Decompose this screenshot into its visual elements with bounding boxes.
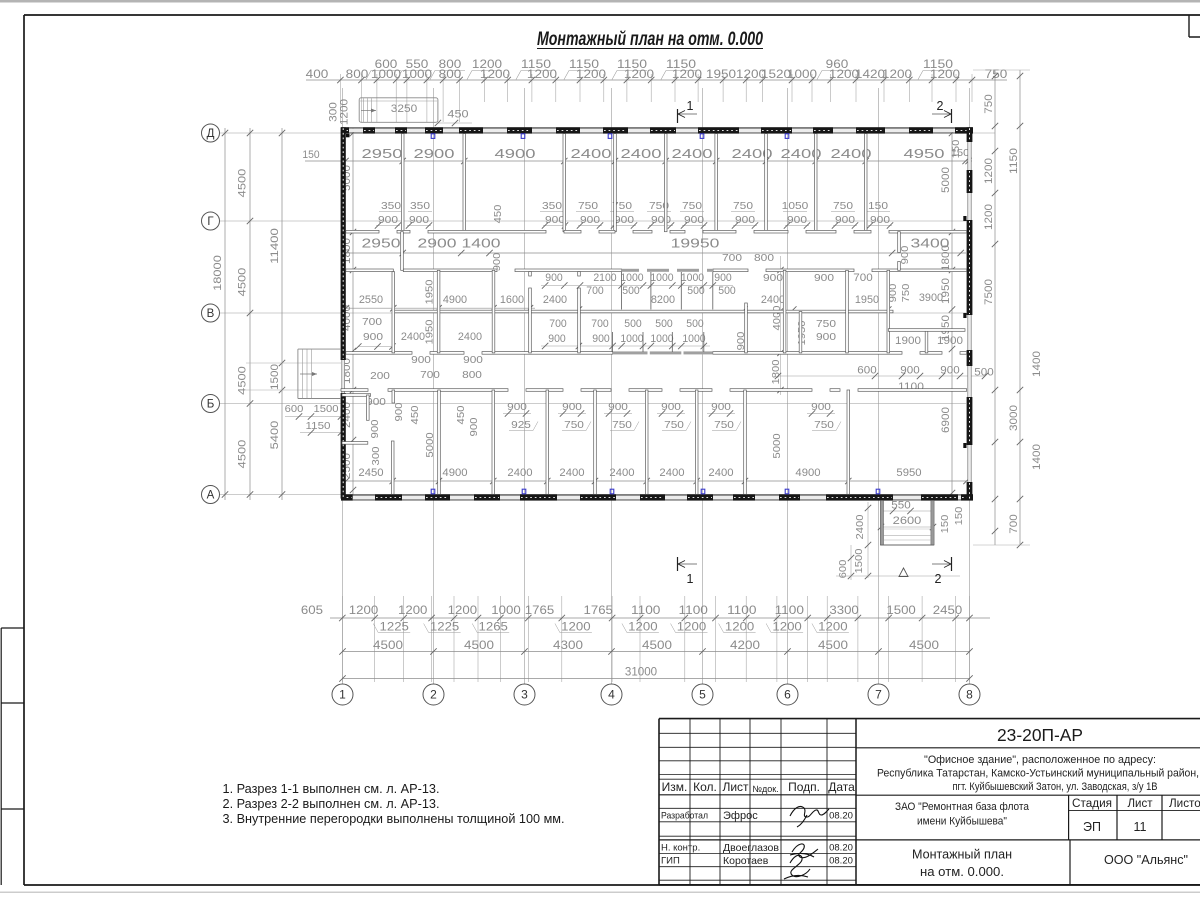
svg-text:2: 2 bbox=[430, 688, 437, 702]
svg-text:2400: 2400 bbox=[559, 467, 584, 479]
svg-text:1900: 1900 bbox=[895, 335, 921, 347]
svg-text:Изм.: Изм. bbox=[662, 780, 688, 794]
svg-text:Листов: Листов bbox=[1169, 798, 1200, 810]
svg-text:Г: Г bbox=[207, 216, 214, 228]
svg-text:600: 600 bbox=[857, 365, 877, 377]
svg-text:4500: 4500 bbox=[642, 640, 672, 652]
svg-text:450: 450 bbox=[455, 405, 467, 424]
svg-text:1400: 1400 bbox=[1031, 351, 1043, 377]
svg-text:1765: 1765 bbox=[584, 605, 613, 617]
svg-text:2400: 2400 bbox=[609, 467, 634, 479]
svg-text:Эфрос: Эфрос bbox=[723, 810, 758, 822]
svg-text:150: 150 bbox=[302, 149, 319, 161]
svg-text:900: 900 bbox=[548, 333, 566, 345]
svg-text:4500: 4500 bbox=[237, 440, 249, 469]
svg-text:700: 700 bbox=[549, 318, 567, 330]
svg-text:1000: 1000 bbox=[402, 69, 432, 81]
svg-text:3: 3 bbox=[521, 688, 528, 702]
svg-text:750: 750 bbox=[714, 419, 734, 431]
svg-text:1265: 1265 bbox=[479, 622, 508, 634]
svg-text:900: 900 bbox=[735, 215, 755, 226]
svg-text:900: 900 bbox=[684, 215, 704, 226]
svg-text:7500: 7500 bbox=[983, 279, 995, 305]
svg-text:1200: 1200 bbox=[725, 622, 754, 634]
svg-text:700: 700 bbox=[591, 318, 609, 330]
svg-text:4900: 4900 bbox=[443, 294, 467, 306]
svg-text:150: 150 bbox=[868, 201, 888, 212]
svg-text:ЗАО "Ремонтная база флота: ЗАО "Ремонтная база флота bbox=[895, 801, 1030, 813]
svg-text:900: 900 bbox=[468, 417, 480, 436]
svg-text:900: 900 bbox=[870, 215, 890, 226]
svg-text:2400: 2400 bbox=[761, 294, 785, 306]
svg-text:Монтажный план: Монтажный план bbox=[912, 847, 1012, 862]
svg-text:8: 8 bbox=[966, 688, 973, 702]
svg-text:А: А bbox=[207, 490, 215, 502]
svg-text:5000: 5000 bbox=[940, 167, 952, 193]
svg-text:1950: 1950 bbox=[425, 319, 436, 344]
svg-text:1000: 1000 bbox=[371, 69, 401, 81]
svg-text:5: 5 bbox=[699, 688, 706, 702]
svg-text:1420: 1420 bbox=[855, 69, 885, 81]
svg-text:600: 600 bbox=[838, 559, 849, 578]
svg-text:900: 900 bbox=[411, 354, 431, 366]
svg-text:1200: 1200 bbox=[677, 622, 706, 634]
svg-text:1: 1 bbox=[687, 99, 694, 113]
svg-text:5950: 5950 bbox=[896, 467, 921, 479]
svg-text:1400: 1400 bbox=[462, 237, 501, 251]
svg-text:750: 750 bbox=[901, 283, 912, 302]
svg-text:800: 800 bbox=[754, 253, 774, 264]
svg-text:2950: 2950 bbox=[362, 147, 403, 161]
svg-text:4500: 4500 bbox=[464, 640, 494, 652]
svg-text:8200: 8200 bbox=[651, 294, 675, 306]
svg-text:2400: 2400 bbox=[507, 467, 532, 479]
svg-text:750: 750 bbox=[816, 319, 836, 330]
svg-text:1100: 1100 bbox=[775, 605, 804, 617]
svg-text:Республика Татарстан, Камско-У: Республика Татарстан, Камско-Устьинский … bbox=[877, 768, 1199, 780]
svg-text:2400: 2400 bbox=[571, 147, 612, 161]
svg-text:4200: 4200 bbox=[730, 640, 760, 652]
svg-text:4900: 4900 bbox=[442, 467, 467, 479]
svg-text:900: 900 bbox=[787, 215, 807, 226]
svg-text:500: 500 bbox=[686, 318, 704, 330]
svg-text:№док.: №док. bbox=[752, 784, 778, 794]
svg-text:900: 900 bbox=[714, 272, 732, 284]
svg-text:1950: 1950 bbox=[855, 294, 879, 306]
svg-text:2400: 2400 bbox=[458, 331, 482, 343]
svg-text:2100: 2100 bbox=[593, 272, 616, 284]
svg-text:1765: 1765 bbox=[525, 605, 554, 617]
svg-text:750: 750 bbox=[733, 201, 753, 212]
svg-text:Коротаев: Коротаев bbox=[723, 855, 769, 867]
svg-text:1200: 1200 bbox=[448, 605, 477, 617]
svg-text:1200: 1200 bbox=[398, 605, 427, 617]
svg-text:ГИП: ГИП bbox=[661, 856, 680, 867]
svg-text:08.20: 08.20 bbox=[829, 811, 853, 822]
svg-text:900: 900 bbox=[651, 215, 671, 226]
svg-text:Лист: Лист bbox=[1128, 798, 1154, 810]
svg-text:1200: 1200 bbox=[983, 204, 995, 230]
svg-text:900: 900 bbox=[835, 215, 855, 226]
svg-text:2400: 2400 bbox=[672, 147, 713, 161]
svg-text:1. Разрез 1-1 выполнен см. л.: 1. Разрез 1-1 выполнен см. л. АР-13. bbox=[223, 781, 440, 796]
svg-text:4: 4 bbox=[608, 688, 615, 702]
svg-text:900: 900 bbox=[900, 245, 911, 264]
svg-text:18000: 18000 bbox=[212, 255, 224, 291]
svg-text:2450: 2450 bbox=[358, 467, 383, 479]
svg-text:4500: 4500 bbox=[818, 640, 848, 652]
svg-text:1000: 1000 bbox=[787, 69, 817, 81]
svg-text:1200: 1200 bbox=[576, 69, 606, 81]
svg-text:900: 900 bbox=[463, 354, 483, 366]
svg-text:Б: Б bbox=[207, 399, 215, 411]
svg-text:700: 700 bbox=[722, 253, 742, 264]
svg-text:имени Куйбышева": имени Куйбышева" bbox=[917, 816, 1007, 828]
svg-text:1000: 1000 bbox=[620, 272, 643, 284]
svg-text:2400: 2400 bbox=[708, 467, 733, 479]
svg-text:4500: 4500 bbox=[909, 640, 939, 652]
svg-text:800: 800 bbox=[439, 69, 462, 81]
svg-text:700: 700 bbox=[420, 369, 440, 381]
svg-text:5000: 5000 bbox=[424, 432, 436, 457]
svg-text:1500: 1500 bbox=[886, 605, 915, 617]
svg-text:08.20: 08.20 bbox=[829, 843, 853, 854]
svg-text:ООО "Альянс": ООО "Альянс" bbox=[1104, 853, 1188, 867]
svg-text:1200: 1200 bbox=[339, 99, 351, 125]
svg-text:Разработал: Разработал bbox=[661, 811, 708, 822]
svg-text:900: 900 bbox=[378, 215, 398, 226]
svg-text:700: 700 bbox=[1008, 514, 1020, 534]
svg-text:4300: 4300 bbox=[553, 640, 583, 652]
svg-text:Д: Д bbox=[207, 128, 215, 140]
svg-text:1500: 1500 bbox=[854, 548, 865, 573]
svg-text:3250: 3250 bbox=[391, 103, 417, 115]
svg-text:4900: 4900 bbox=[795, 467, 820, 479]
svg-text:1000: 1000 bbox=[682, 333, 705, 345]
svg-text:1950: 1950 bbox=[940, 315, 952, 341]
svg-text:1200: 1200 bbox=[349, 605, 378, 617]
svg-text:2: 2 bbox=[937, 99, 944, 113]
svg-text:5400: 5400 bbox=[269, 421, 281, 450]
svg-text:ЭП: ЭП bbox=[1083, 820, 1101, 834]
svg-text:1200: 1200 bbox=[624, 69, 654, 81]
svg-text:500: 500 bbox=[655, 318, 673, 330]
svg-text:700: 700 bbox=[362, 317, 382, 328]
svg-text:2400: 2400 bbox=[855, 514, 866, 539]
svg-text:пгт. Куйбышевский Затон, ул. З: пгт. Куйбышевский Затон, ул. Заводская, … bbox=[953, 781, 1158, 793]
svg-text:450: 450 bbox=[447, 109, 468, 121]
svg-text:750: 750 bbox=[983, 94, 995, 114]
svg-text:750: 750 bbox=[564, 419, 584, 431]
svg-text:900: 900 bbox=[580, 215, 600, 226]
svg-text:1950: 1950 bbox=[425, 279, 436, 304]
svg-text:В: В bbox=[207, 308, 215, 320]
svg-text:1200: 1200 bbox=[930, 69, 960, 81]
svg-text:19950: 19950 bbox=[671, 237, 720, 251]
svg-text:5000: 5000 bbox=[771, 433, 783, 458]
svg-text:2400: 2400 bbox=[401, 331, 425, 343]
svg-text:1100: 1100 bbox=[631, 605, 660, 617]
svg-text:500: 500 bbox=[718, 285, 736, 297]
svg-text:4500: 4500 bbox=[237, 169, 249, 198]
svg-text:Монтажный план на отм. 0.000: Монтажный план на отм. 0.000 bbox=[537, 29, 763, 50]
svg-text:6: 6 bbox=[784, 688, 791, 702]
svg-text:750: 750 bbox=[814, 419, 834, 431]
svg-text:1: 1 bbox=[687, 572, 694, 586]
svg-text:Стадия: Стадия bbox=[1072, 798, 1112, 810]
svg-text:4950: 4950 bbox=[904, 147, 945, 161]
svg-text:31000: 31000 bbox=[625, 667, 657, 679]
svg-text:350: 350 bbox=[542, 201, 562, 212]
svg-text:4500: 4500 bbox=[237, 268, 249, 297]
svg-text:750: 750 bbox=[578, 201, 598, 212]
svg-text:3300: 3300 bbox=[829, 605, 858, 617]
svg-text:1225: 1225 bbox=[430, 622, 459, 634]
svg-text:1150: 1150 bbox=[1008, 148, 1020, 174]
svg-text:150: 150 bbox=[954, 506, 965, 525]
svg-text:Кол.: Кол. bbox=[693, 780, 717, 794]
svg-text:900: 900 bbox=[369, 419, 381, 438]
svg-text:4000: 4000 bbox=[772, 305, 783, 330]
svg-text:3. Внутренние перегородки выпо: 3. Внутренние перегородки выполнены толщ… bbox=[223, 811, 565, 826]
svg-text:на отм. 0.000.: на отм. 0.000. bbox=[920, 864, 1004, 879]
svg-text:11: 11 bbox=[1134, 820, 1147, 834]
svg-text:750: 750 bbox=[682, 201, 702, 212]
svg-text:1050: 1050 bbox=[782, 201, 809, 212]
svg-text:3000: 3000 bbox=[1008, 405, 1020, 431]
svg-text:1100: 1100 bbox=[727, 605, 756, 617]
svg-text:350: 350 bbox=[410, 201, 430, 212]
svg-text:700: 700 bbox=[586, 285, 604, 297]
svg-text:2950: 2950 bbox=[362, 237, 401, 251]
svg-text:Дата: Дата bbox=[828, 780, 855, 794]
svg-text:1600: 1600 bbox=[500, 294, 524, 306]
svg-text:1200: 1200 bbox=[480, 69, 510, 81]
svg-text:800: 800 bbox=[462, 369, 482, 381]
svg-text:300: 300 bbox=[370, 446, 382, 465]
svg-text:7: 7 bbox=[875, 688, 882, 702]
svg-text:750: 750 bbox=[664, 419, 684, 431]
svg-text:1200: 1200 bbox=[772, 622, 801, 634]
svg-text:2900: 2900 bbox=[414, 147, 455, 161]
svg-text:2400: 2400 bbox=[621, 147, 662, 161]
svg-text:900: 900 bbox=[763, 273, 783, 284]
svg-text:925: 925 bbox=[511, 419, 531, 431]
svg-text:1200: 1200 bbox=[628, 622, 657, 634]
svg-text:450: 450 bbox=[409, 405, 421, 424]
svg-text:1: 1 bbox=[339, 688, 346, 702]
svg-text:900: 900 bbox=[816, 332, 836, 343]
svg-text:"Офисное здание", расположенно: "Офисное здание", расположенное по адрес… bbox=[924, 754, 1156, 766]
svg-text:Двоеглазов: Двоеглазов bbox=[723, 842, 779, 854]
svg-text:900: 900 bbox=[393, 402, 405, 421]
svg-text:1950: 1950 bbox=[940, 278, 952, 304]
svg-text:700: 700 bbox=[853, 272, 873, 284]
svg-text:2: 2 bbox=[935, 572, 942, 586]
svg-text:900: 900 bbox=[814, 273, 834, 284]
svg-text:1400: 1400 bbox=[1031, 444, 1043, 470]
svg-text:1500: 1500 bbox=[314, 404, 339, 415]
svg-text:1200: 1200 bbox=[983, 158, 995, 184]
svg-text:2400: 2400 bbox=[543, 294, 567, 306]
svg-text:750: 750 bbox=[833, 201, 853, 212]
svg-text:1200: 1200 bbox=[527, 69, 557, 81]
svg-text:1950: 1950 bbox=[797, 320, 808, 345]
svg-text:1000: 1000 bbox=[491, 605, 520, 617]
svg-text:400: 400 bbox=[306, 69, 329, 81]
svg-text:900: 900 bbox=[545, 215, 565, 226]
svg-text:750: 750 bbox=[612, 419, 632, 431]
svg-text:6900: 6900 bbox=[940, 407, 952, 433]
svg-text:2600: 2600 bbox=[893, 515, 922, 527]
svg-text:350: 350 bbox=[381, 201, 401, 212]
svg-text:1200: 1200 bbox=[561, 622, 590, 634]
svg-text:1200: 1200 bbox=[818, 622, 847, 634]
svg-text:4900: 4900 bbox=[495, 147, 536, 161]
svg-text:Подп.: Подп. bbox=[788, 780, 820, 794]
svg-text:2. Разрез 2-2 выполнен см. л.: 2. Разрез 2-2 выполнен см. л. АР-13. bbox=[223, 796, 440, 811]
svg-text:200: 200 bbox=[370, 370, 390, 382]
svg-text:1500: 1500 bbox=[269, 364, 281, 390]
svg-text:Лист: Лист bbox=[722, 780, 749, 794]
svg-text:11400: 11400 bbox=[269, 228, 281, 264]
svg-text:2400: 2400 bbox=[659, 467, 684, 479]
svg-text:2550: 2550 bbox=[359, 294, 383, 306]
svg-text:500: 500 bbox=[624, 318, 642, 330]
svg-text:150: 150 bbox=[940, 514, 951, 533]
svg-text:800: 800 bbox=[346, 69, 369, 81]
svg-text:4500: 4500 bbox=[373, 640, 403, 652]
svg-text:900: 900 bbox=[492, 252, 503, 271]
svg-text:23-20П-АР: 23-20П-АР bbox=[997, 725, 1083, 745]
svg-text:08.20: 08.20 bbox=[829, 856, 853, 867]
svg-text:4500: 4500 bbox=[237, 366, 249, 395]
svg-text:1150: 1150 bbox=[306, 421, 331, 432]
svg-text:900: 900 bbox=[614, 215, 634, 226]
svg-text:2900: 2900 bbox=[418, 237, 457, 251]
svg-text:900: 900 bbox=[592, 333, 610, 345]
svg-text:1225: 1225 bbox=[380, 622, 409, 634]
svg-text:600: 600 bbox=[285, 404, 304, 415]
svg-text:1950: 1950 bbox=[706, 69, 736, 81]
svg-text:1100: 1100 bbox=[679, 605, 708, 617]
svg-text:150: 150 bbox=[951, 139, 962, 158]
svg-text:1200: 1200 bbox=[882, 69, 912, 81]
svg-text:605: 605 bbox=[301, 605, 323, 617]
svg-text:500: 500 bbox=[622, 285, 640, 297]
svg-text:Н. контр.: Н. контр. bbox=[661, 843, 700, 854]
svg-text:900: 900 bbox=[409, 215, 429, 226]
svg-text:450: 450 bbox=[493, 204, 504, 223]
svg-text:1800: 1800 bbox=[940, 245, 952, 271]
svg-text:900: 900 bbox=[363, 332, 383, 343]
svg-text:1200: 1200 bbox=[672, 69, 702, 81]
svg-text:2450: 2450 bbox=[933, 605, 962, 617]
